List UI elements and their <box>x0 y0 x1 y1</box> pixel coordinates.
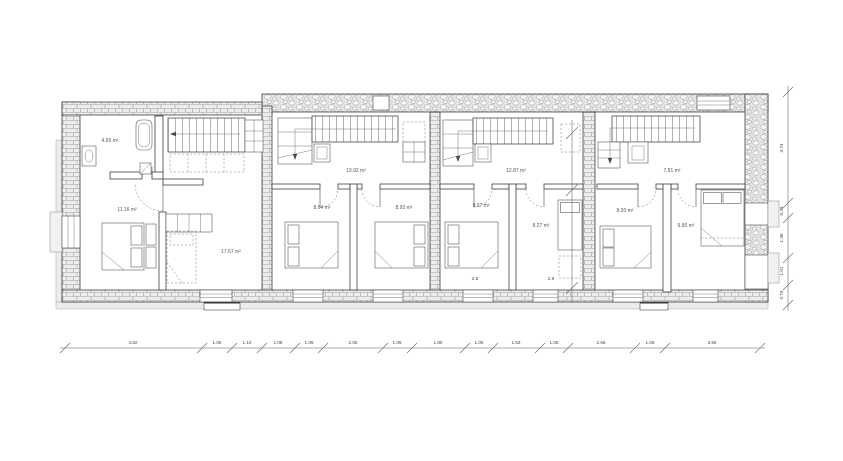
stair-winder <box>598 142 620 168</box>
dimension-label: 1.06 <box>393 340 402 345</box>
window-right-wall-upper <box>745 203 768 225</box>
pillow <box>414 225 425 244</box>
unit-1: 4.65 m² 11.16 m² 17.67 m² <box>82 116 263 290</box>
bedroom-door-right <box>362 189 380 207</box>
pillow <box>288 225 299 244</box>
window-sill-right-upper <box>768 201 779 227</box>
stair-flight <box>168 118 245 152</box>
pillow <box>704 193 722 204</box>
dimension-label: 3.56 <box>708 340 717 345</box>
pillow <box>131 226 142 245</box>
dimension-label: 0.48 <box>779 206 784 215</box>
pillow <box>603 229 614 247</box>
bedside-table <box>146 224 156 245</box>
top-wall-unit-1 <box>62 102 272 115</box>
bathroom-wall-stub <box>152 172 163 179</box>
room-area-label: 4.65 m² <box>102 138 119 144</box>
room-area-label: 17.67 m² <box>221 249 241 255</box>
single-bed-unit3-right <box>558 200 582 278</box>
double-bed-unit2-left <box>285 222 338 268</box>
window-bottom-unit1 <box>200 290 232 302</box>
staircase-unit-3 <box>443 118 553 166</box>
double-bed-unit1 <box>102 223 156 270</box>
pillow <box>448 247 459 266</box>
pillow <box>170 234 193 245</box>
pillow <box>603 248 614 266</box>
bathroom-wall-horizontal <box>110 172 142 179</box>
dimension-label: 1.01 <box>779 266 784 275</box>
window-left-wall <box>62 216 80 248</box>
bedroom-door-right <box>678 189 696 207</box>
double-bed-unit3-left <box>445 222 498 268</box>
window-right-wall-lower <box>745 255 768 289</box>
window-bottom-unit3-left <box>463 290 493 302</box>
shelf-grid <box>403 142 425 162</box>
pillow <box>448 225 459 244</box>
room-area-label: 8.27 m² <box>533 223 550 229</box>
window-bottom-unit2-left <box>293 290 323 302</box>
bathroom-wall-vertical <box>155 116 163 174</box>
dimension-label: 0.74 <box>779 290 784 299</box>
room-area-label: 12.87 m² <box>506 168 526 174</box>
stair-closet <box>475 144 491 162</box>
dimension-label: 4.62 <box>129 340 138 345</box>
dimension-label: 3.74 <box>779 143 784 152</box>
dimension-label: 1.06 <box>646 340 655 345</box>
room-area-label: 8.92 m² <box>396 205 413 211</box>
window-bottom-unit4-left <box>613 290 643 302</box>
room-area-label: 9.07 m² <box>473 203 490 209</box>
bedroom-partition <box>663 184 671 292</box>
left-exterior-wall <box>62 102 80 302</box>
window-top-unit4 <box>697 96 730 110</box>
dimension-label: 1.05 <box>475 340 484 345</box>
stair-flight <box>612 116 700 142</box>
party-wall-2-3 <box>430 112 440 290</box>
single-bed-dashed-unit1 <box>167 231 196 283</box>
window-bottom-unit4-right <box>693 290 718 302</box>
room-area-label: 9.90 m² <box>678 223 695 229</box>
party-wall-3-4 <box>583 112 595 290</box>
dimension-label: 1.08 <box>274 340 283 345</box>
dimension-label: 1.10 <box>243 340 252 345</box>
pillow <box>131 248 142 267</box>
pillow <box>561 203 580 213</box>
room-area-label: 7.91 m² <box>664 168 681 174</box>
unit-2: 13.92 m² 8.64 m² 8.92 m² <box>272 116 430 290</box>
dimension-label: 1.06 <box>305 340 314 345</box>
floor-plan-canvas: 4.65 m² 11.16 m² 17.67 m² <box>0 0 843 461</box>
pillow <box>288 247 299 266</box>
double-bed-unit2-right <box>375 222 428 268</box>
floor-plan-drawing: 4.65 m² 11.16 m² 17.67 m² <box>0 0 843 461</box>
window-sill-left <box>50 212 62 252</box>
bedroom-door-right <box>526 189 544 207</box>
bottom-dimension-chain: 4.62 1.06 1.10 1.08 1.06 2.05 1.06 1.80 … <box>60 340 765 353</box>
double-bed-unit4-right <box>701 190 744 246</box>
staircase-unit-1 <box>168 118 263 172</box>
double-bed-unit4-left <box>600 226 651 268</box>
staircase-unit-2 <box>278 116 398 164</box>
unit-3: 12.87 m² 9.07 m² 8.27 m² 2.8 2.8 <box>440 118 583 302</box>
hall-door <box>135 179 203 211</box>
dimension-label: 1.80 <box>434 340 443 345</box>
bedroom-door-left <box>638 189 656 207</box>
bedroom-partition-unit1 <box>159 212 166 290</box>
window-bottom-unit3-right <box>533 290 558 302</box>
room-area-label: 11.16 m² <box>117 207 137 213</box>
dimension-label: 1.05 <box>550 340 559 345</box>
staircase-unit-4 <box>598 116 700 168</box>
window-sill-right-lower <box>768 253 779 283</box>
pillow <box>723 193 741 204</box>
party-wall-1-2 <box>262 106 272 290</box>
window-top-unit2 <box>373 96 389 110</box>
internal-dimension-label: 2.8 <box>472 276 479 281</box>
sink <box>82 146 96 166</box>
right-dimension-chain: 3.74 0.48 1.36 1.01 0.74 <box>779 86 793 311</box>
dimension-label: 1.06 <box>213 340 222 345</box>
room-area-label: 8.20 m² <box>617 208 634 214</box>
room-area-label: 13.92 m² <box>346 168 366 174</box>
dimension-label: 2.56 <box>597 340 606 345</box>
unit-4: 7.91 m² 8.20 m² 9.90 m² <box>597 116 745 292</box>
bedside-table <box>146 247 156 268</box>
dimension-label: 1.36 <box>779 233 784 242</box>
bedroom-partition <box>509 184 516 290</box>
dimension-label: 2.05 <box>349 340 358 345</box>
desk-dashed <box>559 256 581 278</box>
window-bottom-unit2-right <box>373 290 403 302</box>
under-stair-cupboard <box>170 154 244 172</box>
internal-dimension-label: 2.8 <box>548 276 555 281</box>
top-stone-wall <box>262 94 768 112</box>
stair-closet <box>314 144 330 162</box>
dimension-label: 1.53 <box>512 340 521 345</box>
room-area-label: 8.64 m² <box>314 205 331 211</box>
bedroom-partition <box>350 184 357 290</box>
bottom-exterior-wall <box>62 290 768 302</box>
pillow <box>414 247 425 266</box>
shelf-unit <box>166 214 212 232</box>
